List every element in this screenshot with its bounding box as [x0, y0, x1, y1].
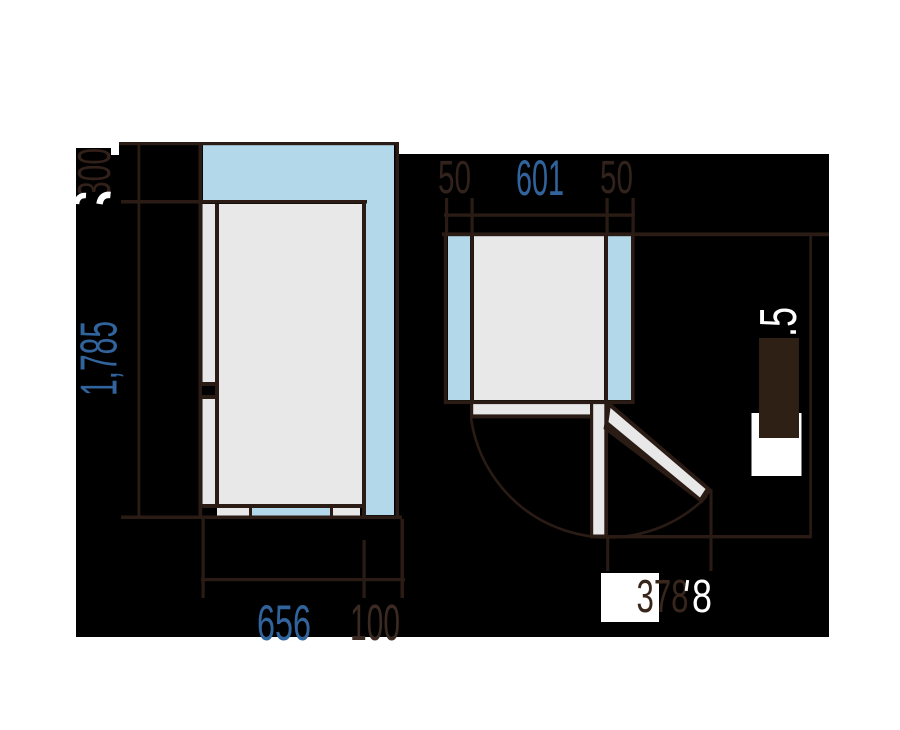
svg-text:50: 50 [438, 151, 471, 203]
svg-text:1,785: 1,785 [71, 321, 129, 396]
svg-text:8: 8 [692, 570, 712, 622]
svg-text:.5: .5 [750, 307, 808, 337]
svg-text:50: 50 [600, 151, 633, 203]
svg-text:656: 656 [257, 595, 311, 651]
svg-text:601: 601 [516, 149, 564, 206]
svg-text:300: 300 [68, 148, 120, 198]
svg-text:100: 100 [350, 594, 400, 651]
svg-text:378: 378 [637, 570, 689, 622]
